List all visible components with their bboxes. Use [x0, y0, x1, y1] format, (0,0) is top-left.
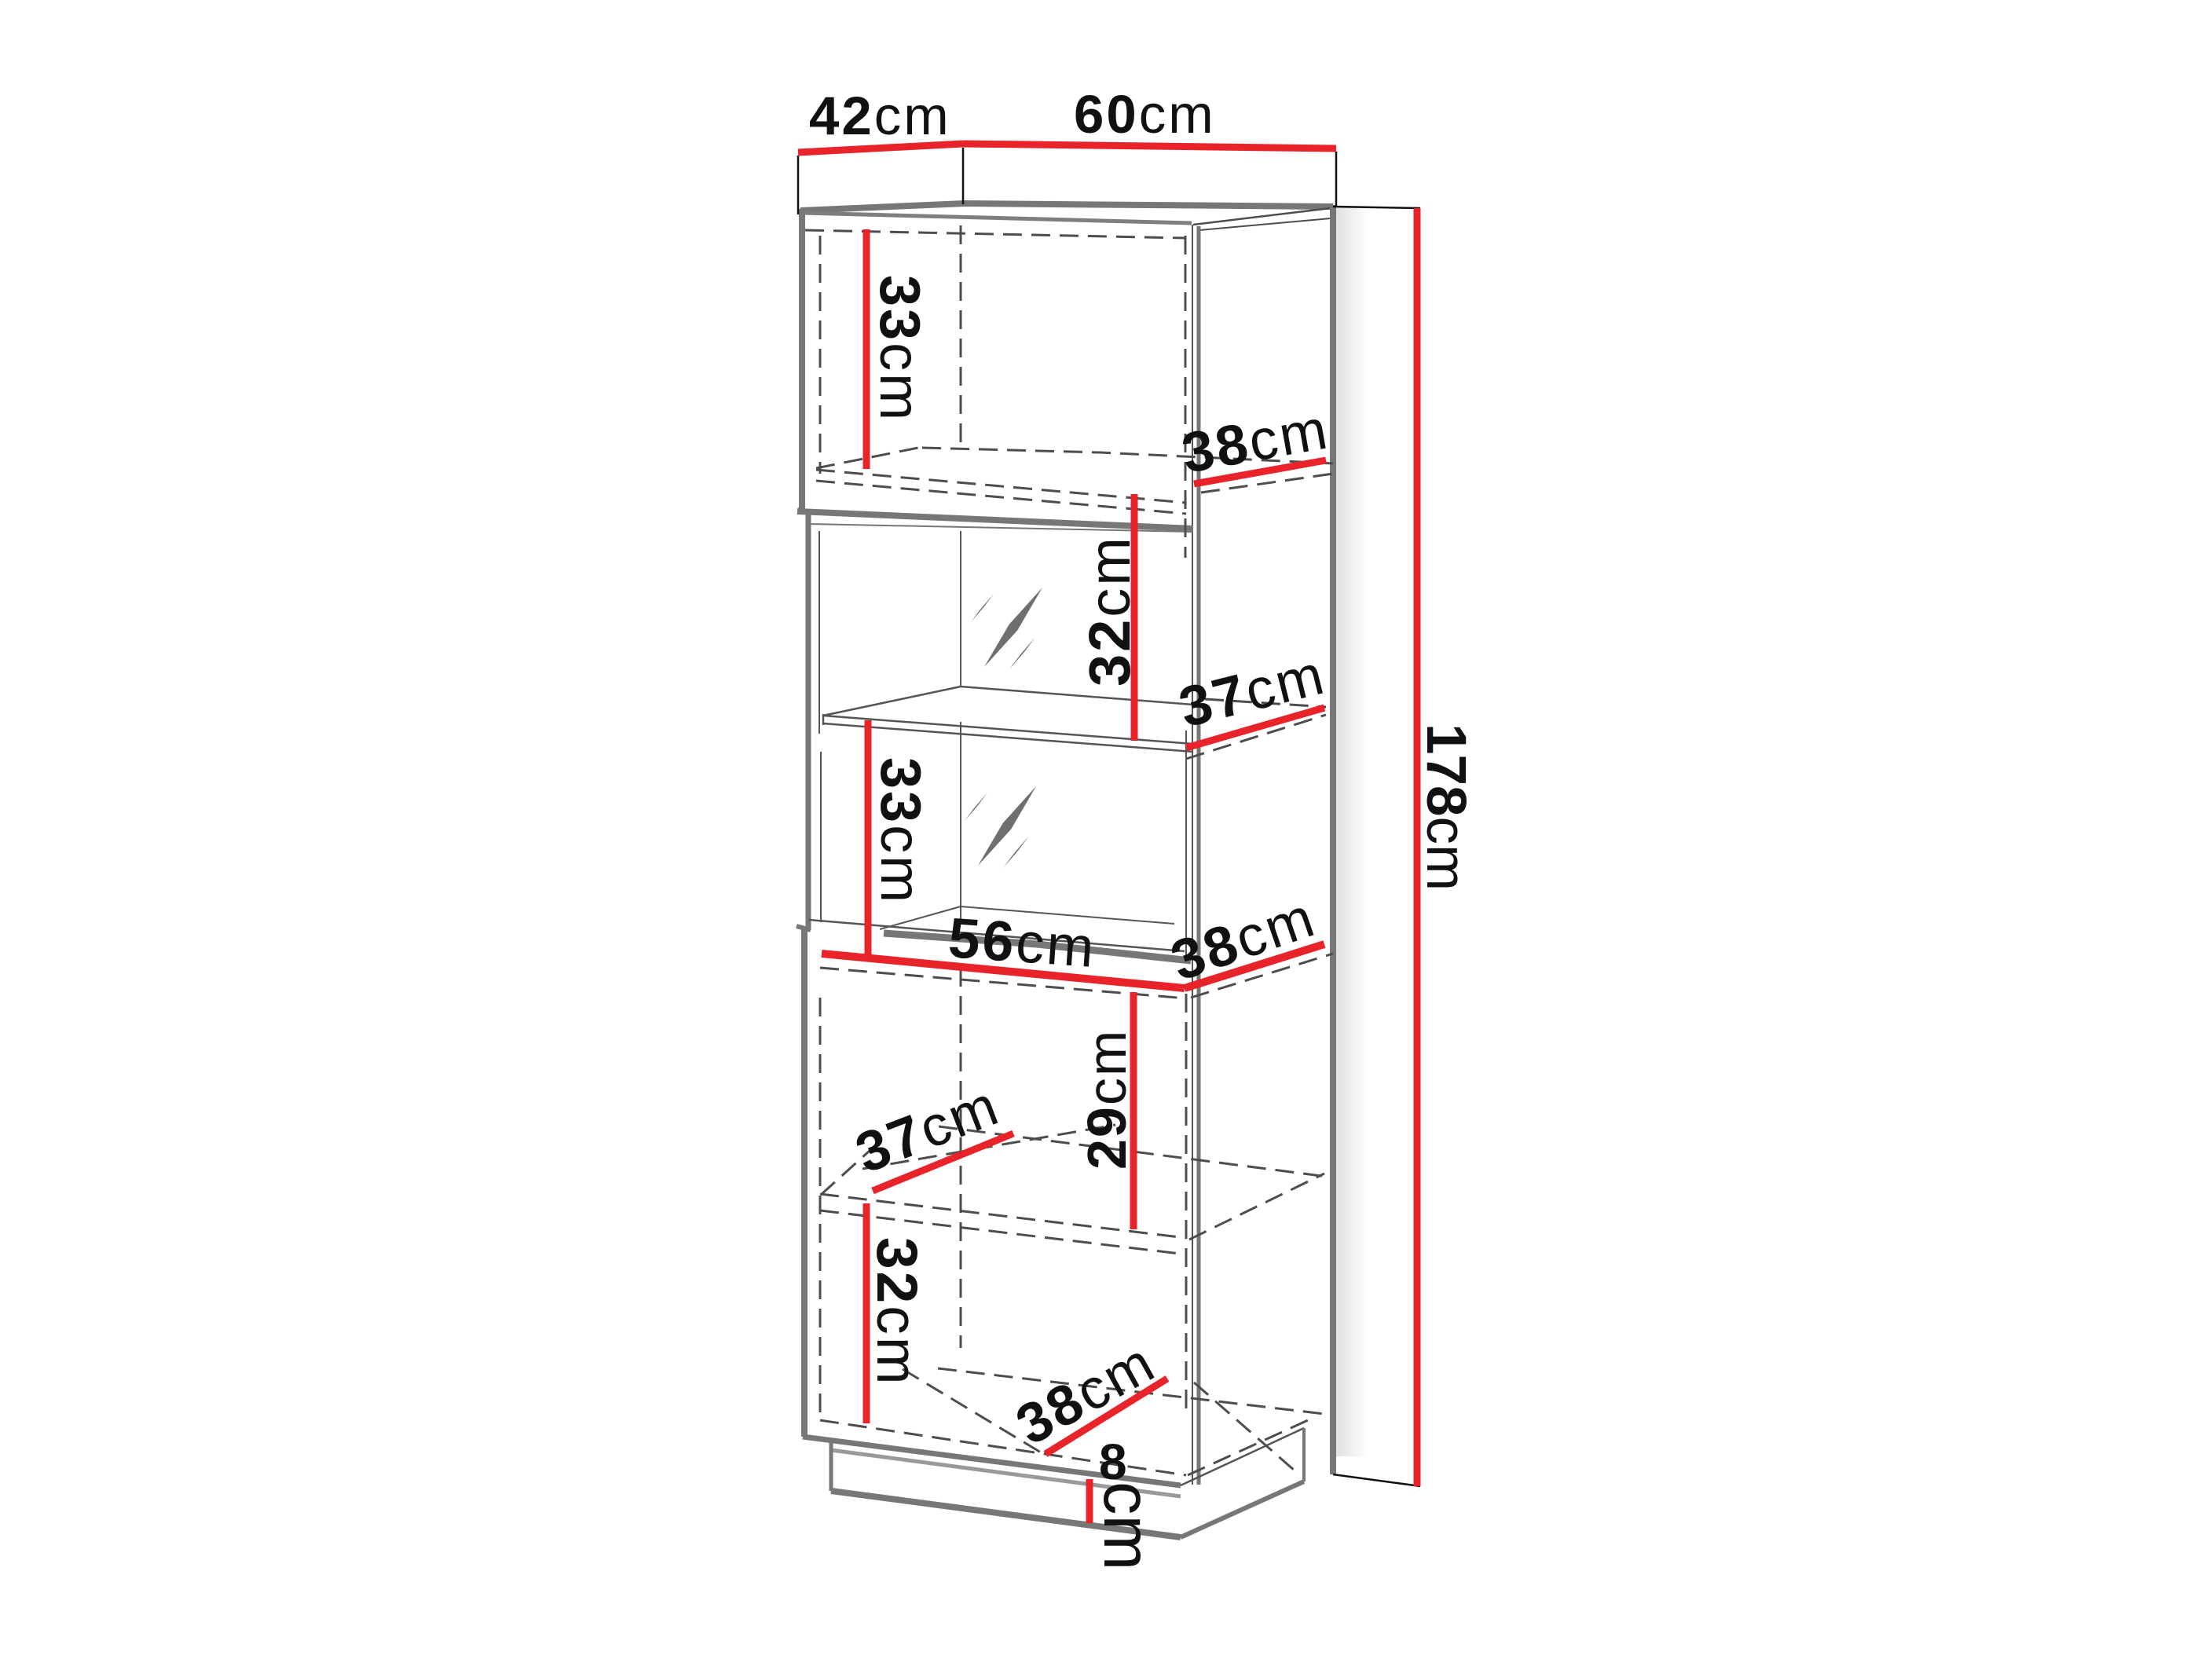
svg-text:32cm: 32cm — [1077, 535, 1142, 687]
svg-text:178cm: 178cm — [1415, 723, 1477, 891]
svg-text:cm: cm — [1090, 1481, 1164, 1570]
svg-text:42cm: 42cm — [809, 86, 951, 146]
svg-text:56cm: 56cm — [947, 906, 1098, 980]
svg-text:33cm: 33cm — [869, 757, 932, 905]
svg-text:29cm: 29cm — [1076, 1029, 1137, 1170]
svg-text:33cm: 33cm — [868, 275, 931, 423]
svg-text:32cm: 32cm — [865, 1237, 928, 1387]
svg-text:60cm: 60cm — [1074, 84, 1216, 145]
